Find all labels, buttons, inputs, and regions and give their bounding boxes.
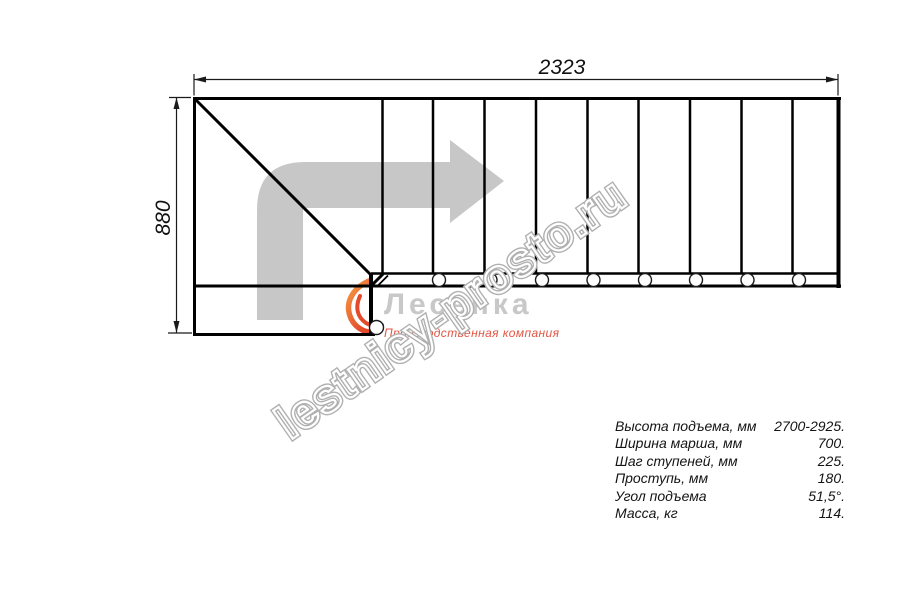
spec-row-tread: Проступь, мм 180. [615,470,845,487]
dim-arrow-bottom [174,321,180,333]
spec-value: 225. [818,453,845,469]
spec-label: Проступь, мм [615,470,708,486]
spec-value: 2700-2925. [774,418,845,434]
spec-row-mass: Масса, кг 114. [615,505,845,522]
spec-value: 51,5°. [808,488,845,504]
spec-label: Шаг ступеней, мм [615,453,738,469]
width-dimension [194,74,838,96]
width-dimension-label: 2323 [538,56,586,79]
spec-value: 180. [818,470,845,486]
height-dimension-label: 880 [152,200,175,235]
spec-row-angle: Угол подъема 51,5°. [615,488,845,505]
spec-row-march-width: Ширина марша, мм 700. [615,435,845,452]
dim-arrow-left [194,77,206,83]
spec-value: 700. [818,435,845,451]
spec-label: Высота подъема, мм [615,418,757,434]
spec-row-step-pitch: Шаг ступеней, мм 225. [615,453,845,470]
spec-table: Высота подъема, мм 2700-2925. Ширина мар… [615,418,845,522]
dim-arrow-top [174,98,180,110]
spec-label: Угол подъема [615,488,707,504]
stair-drawing-page: 2323 880 Лесенка Производственная компан… [0,0,900,600]
spec-label: Ширина марша, мм [615,435,742,451]
spec-label: Масса, кг [615,505,678,521]
spec-row-height: Высота подъема, мм 2700-2925. [615,418,845,435]
dim-arrow-right [826,77,838,83]
spec-value: 114. [819,505,845,521]
